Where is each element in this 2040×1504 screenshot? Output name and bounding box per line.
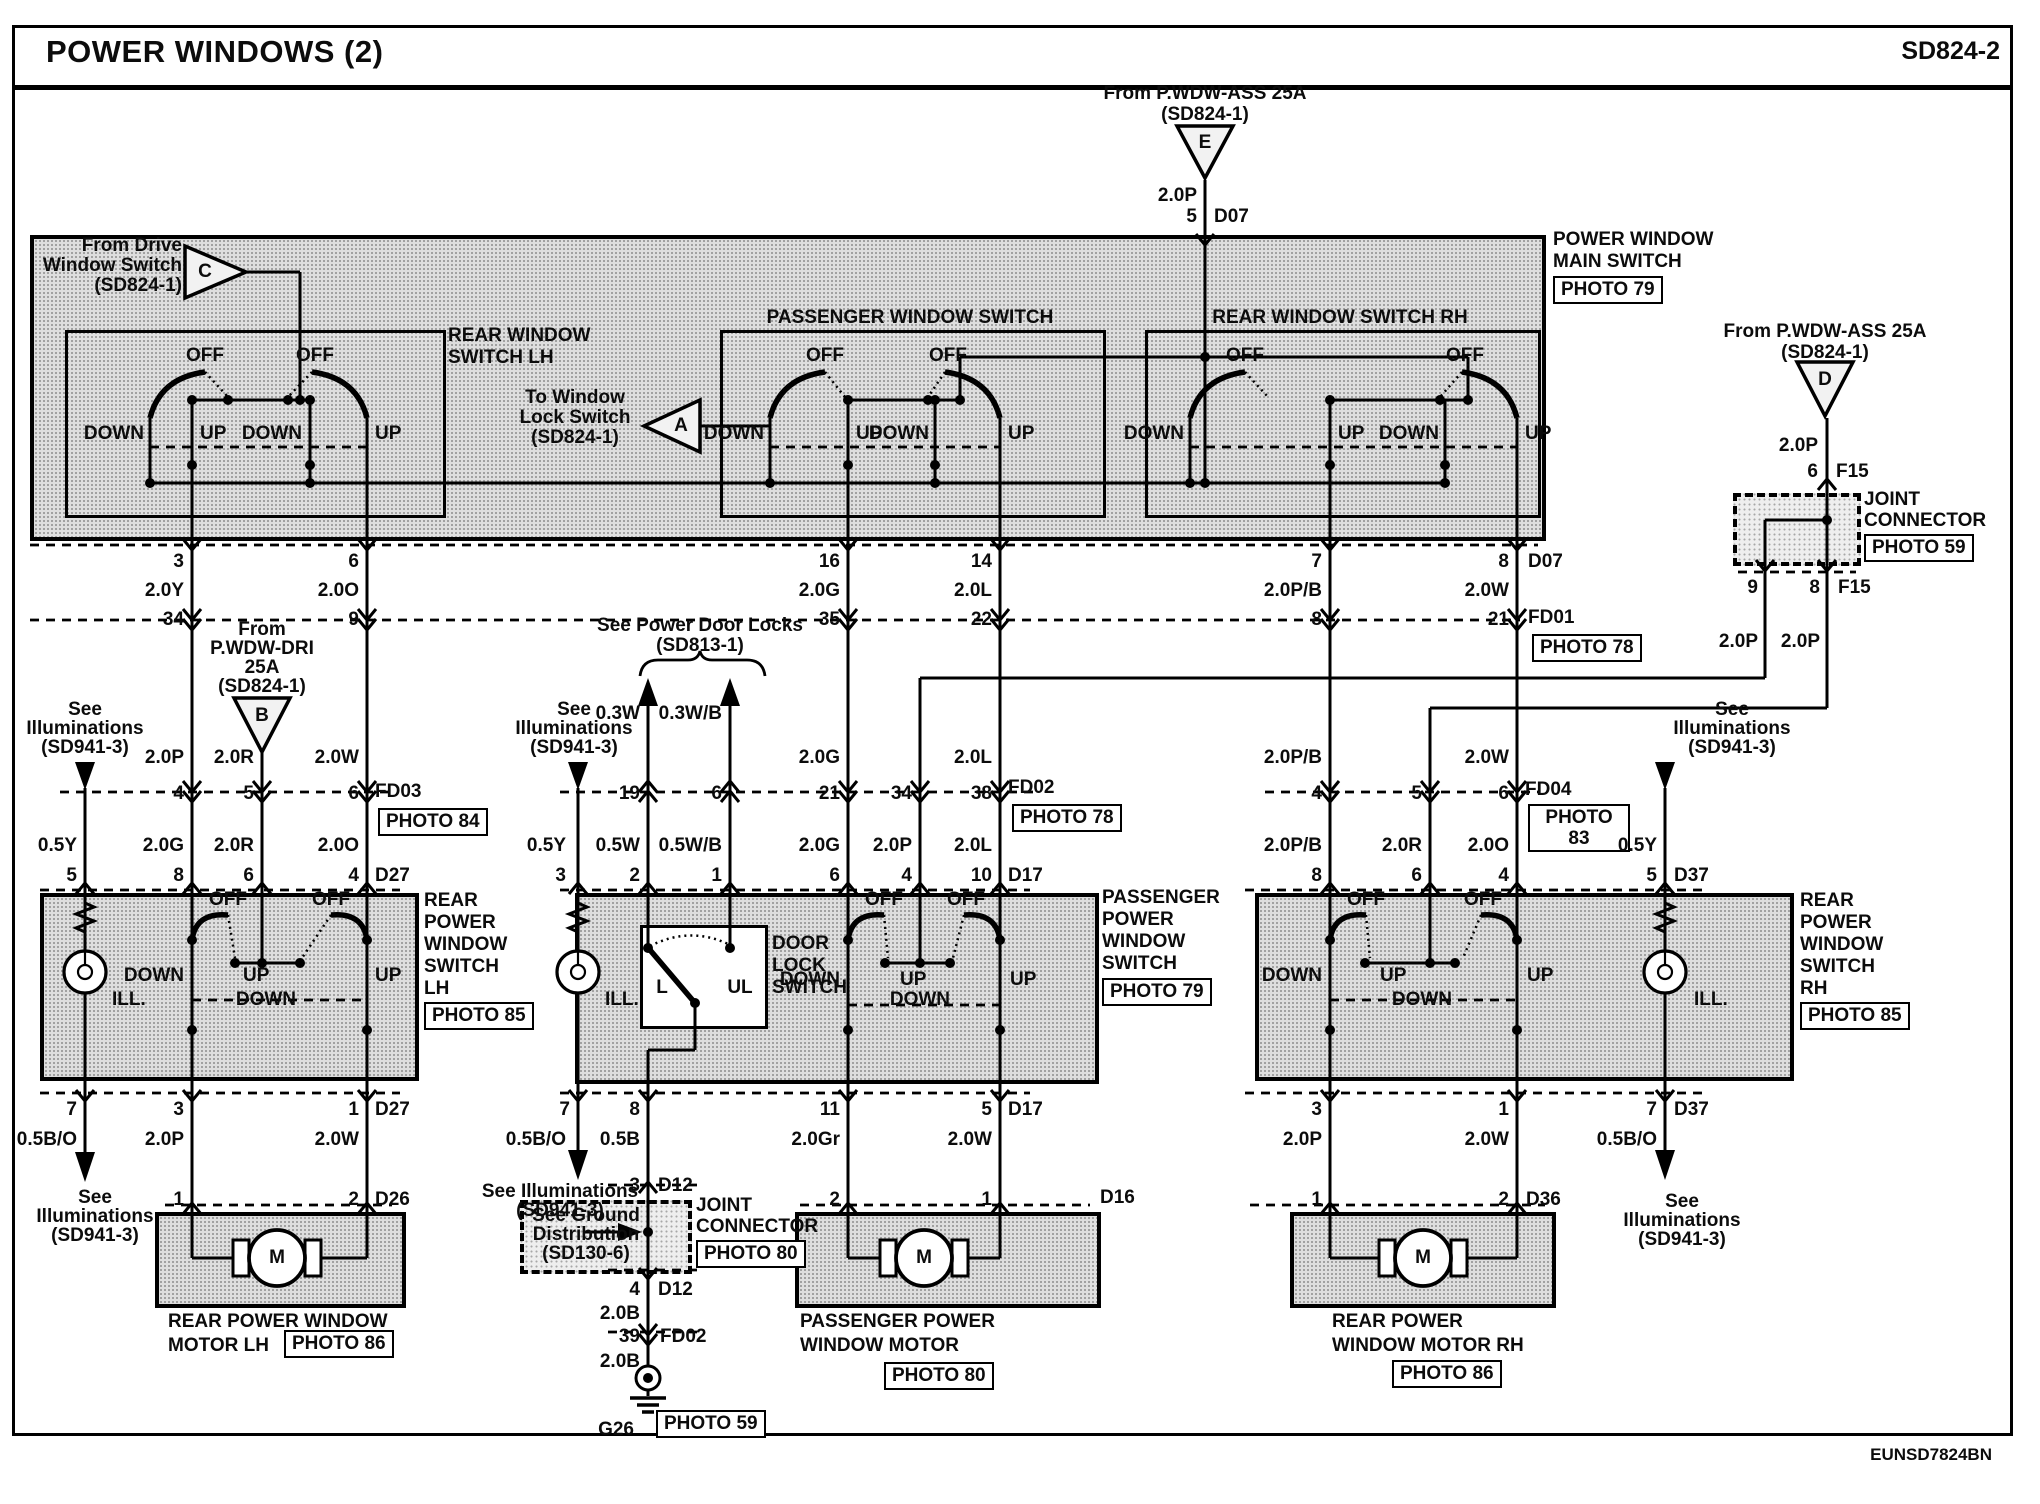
wire-label: 2.0W: [315, 748, 359, 768]
feed-b-source-1: From: [238, 620, 286, 640]
photo-ref: PHOTO 78: [1012, 804, 1122, 832]
box-title-5: LH: [424, 979, 449, 999]
pin-label: 6: [711, 784, 722, 804]
pin-label: 7: [559, 1100, 570, 1120]
wire-label: 2.0W: [315, 1130, 359, 1150]
wire-label: 0.5Y: [38, 836, 77, 856]
pin-label: 34: [163, 610, 184, 630]
door-lock-pos: L: [656, 978, 668, 998]
conn-label: D27: [375, 866, 410, 886]
wire-label: 2.0W: [1465, 1130, 1509, 1150]
door-lock-title-1: DOOR: [772, 934, 829, 954]
box-title-4: SWITCH: [424, 957, 499, 977]
ref-triangle-a-letter: A: [674, 416, 688, 436]
pin-label: 3: [555, 866, 566, 886]
motor-title-2: MOTOR LH: [168, 1336, 269, 1356]
wire-label: 0.5W/B: [659, 836, 722, 856]
wire-label: 2.0P: [1719, 632, 1758, 652]
switch-pos: DOWN: [890, 990, 950, 1010]
pin-label: 7: [66, 1100, 77, 1120]
switch-pos: DOWN: [1124, 424, 1184, 444]
wire-label: 2.0P: [145, 1130, 184, 1150]
lamp-label: ILL.: [605, 990, 639, 1010]
pin-label: 4: [629, 1280, 640, 1300]
illum-ref-3: (SD941-3): [530, 738, 618, 758]
photo-ref: PHOTO 85: [424, 1002, 534, 1030]
switch-pos: OFF: [296, 346, 334, 366]
box-title-2: POWER: [424, 913, 496, 933]
pin-label: 5: [1646, 866, 1657, 886]
box-title-2: SWITCH LH: [448, 348, 554, 368]
wire-label: 2.0L: [954, 748, 992, 768]
illum-ref-2: Illuminations: [26, 719, 143, 739]
box-title-3: WINDOW: [424, 935, 507, 955]
wire-label: 2.0G: [799, 836, 840, 856]
wire-label: 0.5W: [596, 836, 640, 856]
switch-pos: OFF: [186, 346, 224, 366]
wire-label: 2.0O: [318, 581, 359, 601]
box-title-2: POWER: [1102, 910, 1174, 930]
switch-pos: OFF: [1226, 346, 1264, 366]
main-switch-title-1: POWER WINDOW: [1553, 230, 1713, 250]
illum-ref-3: (SD941-3): [51, 1226, 139, 1246]
pin-label: 6: [1411, 866, 1422, 886]
switch-pos: DOWN: [242, 424, 302, 444]
joint-connector-title-1: JOINT: [1864, 490, 1920, 510]
pin-label: 39: [619, 1327, 640, 1347]
ground-label: G26: [598, 1420, 634, 1440]
box-title-3: WINDOW: [1102, 932, 1185, 952]
pin-label: 5: [243, 784, 254, 804]
illum-ref-3: (SD941-3): [41, 738, 129, 758]
box-title-5: RH: [1800, 979, 1827, 999]
photo-ref: PHOTO 86: [1392, 1360, 1502, 1388]
pin-label: 1: [173, 1190, 184, 1210]
ref-a-dest-2: Lock Switch: [520, 408, 631, 428]
photo-ref: PHOTO 78: [1532, 634, 1642, 662]
motor-letter: M: [1415, 1248, 1431, 1268]
illum-ref-2: Illuminations: [1673, 719, 1790, 739]
illum-ref-3: (SD941-3): [1638, 1230, 1726, 1250]
conn-label: F15: [1838, 578, 1871, 598]
motor-title-2: WINDOW MOTOR RH: [1332, 1336, 1524, 1356]
conn-label: D16: [1100, 1188, 1135, 1208]
switch-pos: DOWN: [1392, 990, 1452, 1010]
conn-label: D07: [1528, 552, 1563, 572]
pin-label: 4: [901, 866, 912, 886]
pin-label: 1: [1498, 1100, 1509, 1120]
switch-pos: OFF: [1446, 346, 1484, 366]
illum-ref-1: See: [1665, 1192, 1699, 1212]
feed-d-page: (SD824-1): [1781, 343, 1869, 363]
pin-label: 4: [348, 866, 359, 886]
wire-label: 2.0O: [318, 836, 359, 856]
switch-pos: DOWN: [869, 424, 929, 444]
pin-label: 19: [619, 784, 640, 804]
conn-label: FD01: [1528, 608, 1574, 628]
conn-label: D37: [1674, 866, 1709, 886]
pin-label: 3: [629, 1176, 640, 1196]
pin-label: 9: [348, 610, 359, 630]
switch-pos: OFF: [1347, 890, 1385, 910]
pin-label: 3: [173, 1100, 184, 1120]
switch-pos: UP: [1010, 970, 1036, 990]
pin-label: 35: [819, 610, 840, 630]
feed-e-source: From P.WDW-ASS 25A: [1103, 84, 1306, 104]
door-locks-ref-1: See Power Door Locks: [597, 616, 803, 636]
pin-label: 2: [829, 1190, 840, 1210]
conn-label: F15: [1836, 462, 1869, 482]
switch-pos: UP: [243, 966, 269, 986]
illum-ref-3: (SD941-3): [1688, 738, 1776, 758]
photo-ref: PHOTO 86: [284, 1330, 394, 1358]
conn-label: FD04: [1525, 780, 1571, 800]
wire-label: 2.0R: [1382, 836, 1422, 856]
conn-label: D12: [658, 1176, 693, 1196]
pin-label: 1: [981, 1190, 992, 1210]
wire-label: 2.0P/B: [1264, 748, 1322, 768]
motor-letter: M: [269, 1248, 285, 1268]
photo-ref: PHOTO 85: [1800, 1002, 1910, 1030]
ground-dist-2: Distribution: [533, 1225, 640, 1245]
pin-label: 2: [348, 1190, 359, 1210]
illum-ref-1: See Illuminations: [482, 1182, 638, 1202]
wire-label: 2.0P: [1158, 186, 1197, 206]
pin-label: 8: [173, 866, 184, 886]
switch-pos: DOWN: [1262, 966, 1322, 986]
pin-label: 5: [1411, 784, 1422, 804]
pin-label: 4: [173, 784, 184, 804]
box-title-2: POWER: [1800, 913, 1872, 933]
wire-label: 2.0P: [873, 836, 912, 856]
wire-label: 2.0Y: [145, 581, 184, 601]
wire-label: 2.0P: [1781, 632, 1820, 652]
ref-a-dest-1: To Window: [525, 388, 625, 408]
switch-pos: UP: [375, 424, 401, 444]
pin-label: 1: [348, 1100, 359, 1120]
pin-label: 5: [981, 1100, 992, 1120]
feed-e-page: (SD824-1): [1161, 105, 1249, 125]
ref-triangle-e-letter: E: [1199, 133, 1212, 153]
switch-pos: DOWN: [704, 424, 764, 444]
pin-label: 1: [711, 866, 722, 886]
ground-dist-1: See Ground: [532, 1206, 640, 1226]
wire-label: 2.0P/B: [1264, 836, 1322, 856]
door-locks-ref-2: (SD813-1): [656, 636, 744, 656]
switch-pos: OFF: [947, 890, 985, 910]
ground-dist-3: (SD130-6): [542, 1244, 630, 1264]
illum-ref-1: See: [1715, 700, 1749, 720]
switch-pos: DOWN: [236, 990, 296, 1010]
wire-label: 0.5Y: [527, 836, 566, 856]
pin-label: 9: [1747, 578, 1758, 598]
conn-label: D17: [1008, 866, 1043, 886]
pin-label: 6: [348, 784, 359, 804]
wire-label: 2.0O: [1468, 836, 1509, 856]
pin-label: 6: [1807, 462, 1818, 482]
photo-ref: PHOTO 79: [1553, 276, 1663, 304]
wire-label: 2.0R: [214, 836, 254, 856]
conn-label: D37: [1674, 1100, 1709, 1120]
switch-pos: OFF: [312, 890, 350, 910]
pin-label: 8: [1311, 610, 1322, 630]
pin-label: 5: [66, 866, 77, 886]
photo-ref: PHOTO 80: [884, 1362, 994, 1390]
switch-pos: OFF: [209, 890, 247, 910]
ref-a-dest-3: (SD824-1): [531, 428, 619, 448]
conn-label: FD02: [660, 1327, 706, 1347]
feed-c-source-3: (SD824-1): [94, 276, 182, 296]
pin-label: 7: [1311, 552, 1322, 572]
feed-b-source-3: 25A: [245, 658, 280, 678]
lamp-label: ILL.: [1694, 990, 1728, 1010]
wiring-diagram-page: POWER WINDOWS (2) SD824-2 EUNSD7824BN Fr…: [0, 0, 2040, 1504]
wire-label: 2.0P: [1779, 436, 1818, 456]
conn-label: D07: [1214, 207, 1249, 227]
lamp-label: ILL.: [112, 990, 146, 1010]
pin-label: 6: [243, 866, 254, 886]
feed-b-source-2: P.WDW-DRI: [210, 639, 314, 659]
wire-label: 2.0L: [954, 836, 992, 856]
pin-label: 3: [173, 552, 184, 572]
pin-label: 6: [1498, 784, 1509, 804]
pin-label: 8: [1311, 866, 1322, 886]
feed-c-source-1: From Drive: [82, 236, 182, 256]
conn-label: D12: [658, 1280, 693, 1300]
photo-ref: PHOTO 80: [696, 1240, 806, 1268]
wire-label: 2.0G: [799, 748, 840, 768]
conn-label: FD03: [375, 782, 421, 802]
conn-label: D36: [1526, 1190, 1561, 1210]
wire-label: 2.0W: [948, 1130, 992, 1150]
switch-pos: UP: [200, 424, 226, 444]
motor-title-1: PASSENGER POWER: [800, 1312, 995, 1332]
door-lock-pos: UL: [727, 978, 752, 998]
conn-label: D17: [1008, 1100, 1043, 1120]
wire-label: 2.0B: [600, 1352, 640, 1372]
illum-ref-2: Illuminations: [1623, 1211, 1740, 1231]
switch-pos: DOWN: [124, 966, 184, 986]
pin-label: 22: [971, 610, 992, 630]
pin-label: 6: [348, 552, 359, 572]
main-switch-title-2: MAIN SWITCH: [1553, 252, 1682, 272]
switch-pos: OFF: [929, 346, 967, 366]
photo-ref: PHOTO 79: [1102, 978, 1212, 1006]
pin-label: 5: [1186, 207, 1197, 227]
wire-label: 2.0P/B: [1264, 581, 1322, 601]
pin-label: 11: [820, 1100, 840, 1120]
photo-ref: PHOTO 84: [378, 808, 488, 836]
pin-label: 10: [971, 866, 992, 886]
wire-label: 2.0Gr: [791, 1130, 840, 1150]
pin-label: 34: [891, 784, 912, 804]
switch-pos: DOWN: [780, 970, 840, 990]
wire-label: 2.0P: [145, 748, 184, 768]
motor-title-1: REAR POWER: [1332, 1312, 1463, 1332]
switch-pos: UP: [1338, 424, 1364, 444]
wire-label: 2.0P: [1283, 1130, 1322, 1150]
photo-ref: PHOTO 59: [656, 1410, 766, 1438]
joint-connector-title-1: JOINT: [696, 1196, 752, 1216]
pin-label: 16: [819, 552, 840, 572]
ref-triangle-c-letter: C: [198, 262, 212, 282]
box-title: PASSENGER WINDOW SWITCH: [767, 308, 1054, 328]
motor-title-1: REAR POWER WINDOW: [168, 1312, 388, 1332]
illum-ref-1: See: [78, 1188, 112, 1208]
box-title-1: PASSENGER: [1102, 888, 1220, 908]
joint-connector-title-2: CONNECTOR: [696, 1217, 818, 1237]
switch-pos: UP: [1380, 966, 1406, 986]
pin-label: 8: [1498, 552, 1509, 572]
wire-label: 2.0B: [600, 1304, 640, 1324]
wire-label: 0.5B/O: [17, 1130, 77, 1150]
switch-pos: OFF: [1464, 890, 1502, 910]
illum-ref-2: Illuminations: [515, 719, 632, 739]
pin-label: 2: [1498, 1190, 1509, 1210]
switch-pos: UP: [900, 970, 926, 990]
wire-label: 2.0G: [799, 581, 840, 601]
box-title: REAR WINDOW SWITCH RH: [1212, 308, 1467, 328]
switch-pos: UP: [375, 966, 401, 986]
photo-ref: PHOTO 83: [1528, 804, 1630, 852]
illum-ref-1: See: [557, 700, 591, 720]
box-title-4: SWITCH: [1102, 954, 1177, 974]
box-title-1: REAR: [1800, 891, 1854, 911]
switch-pos: DOWN: [1379, 424, 1439, 444]
wire-label: 0.5B: [600, 1130, 640, 1150]
switch-pos: UP: [1527, 966, 1553, 986]
switch-pos: OFF: [806, 346, 844, 366]
switch-pos: UP: [1008, 424, 1034, 444]
box-title-1: REAR: [424, 891, 478, 911]
pin-label: 6: [829, 866, 840, 886]
wire-label: 2.0R: [214, 748, 254, 768]
feed-c-source-2: Window Switch: [43, 256, 182, 276]
illum-ref-2: Illuminations: [36, 1207, 153, 1227]
conn-label: D27: [375, 1100, 410, 1120]
pin-label: 2: [629, 866, 640, 886]
switch-pos: OFF: [865, 890, 903, 910]
wire-label: 0.3W/B: [659, 704, 722, 724]
pin-label: 4: [1311, 784, 1322, 804]
wire-label: 2.0W: [1465, 748, 1509, 768]
switch-pos: UP: [1525, 424, 1551, 444]
pin-label: 3: [1311, 1100, 1322, 1120]
pin-label: 14: [971, 552, 992, 572]
pin-label: 7: [1646, 1100, 1657, 1120]
illum-ref-1: See: [68, 700, 102, 720]
ref-triangle-d-letter: D: [1818, 370, 1832, 390]
motor-title-2: WINDOW MOTOR: [800, 1336, 959, 1356]
pin-label: 21: [819, 784, 840, 804]
wire-label: 2.0W: [1465, 581, 1509, 601]
pin-label: 21: [1488, 610, 1509, 630]
box-title-4: SWITCH: [1800, 957, 1875, 977]
feed-b-source-4: (SD824-1): [218, 677, 306, 697]
motor-letter: M: [916, 1248, 932, 1268]
feed-d-source: From P.WDW-ASS 25A: [1723, 322, 1926, 342]
pin-label: 38: [971, 784, 992, 804]
wire-label: 0.5B/O: [506, 1130, 566, 1150]
conn-label: FD02: [1008, 778, 1054, 798]
switch-pos: DOWN: [84, 424, 144, 444]
photo-ref: PHOTO 59: [1864, 534, 1974, 562]
box-title-3: WINDOW: [1800, 935, 1883, 955]
wire-label: 0.5Y: [1618, 836, 1657, 856]
wire-label: 2.0G: [143, 836, 184, 856]
joint-connector-title-2: CONNECTOR: [1864, 511, 1986, 531]
wire-label: 2.0L: [954, 581, 992, 601]
pin-label: 8: [629, 1100, 640, 1120]
pin-label: 8: [1809, 578, 1820, 598]
pin-label: 4: [1498, 866, 1509, 886]
ref-triangle-b-letter: B: [255, 706, 269, 726]
pin-label: 1: [1311, 1190, 1322, 1210]
wire-label: 0.5B/O: [1597, 1130, 1657, 1150]
conn-label: D26: [375, 1190, 410, 1210]
box-title-1: REAR WINDOW: [448, 326, 590, 346]
